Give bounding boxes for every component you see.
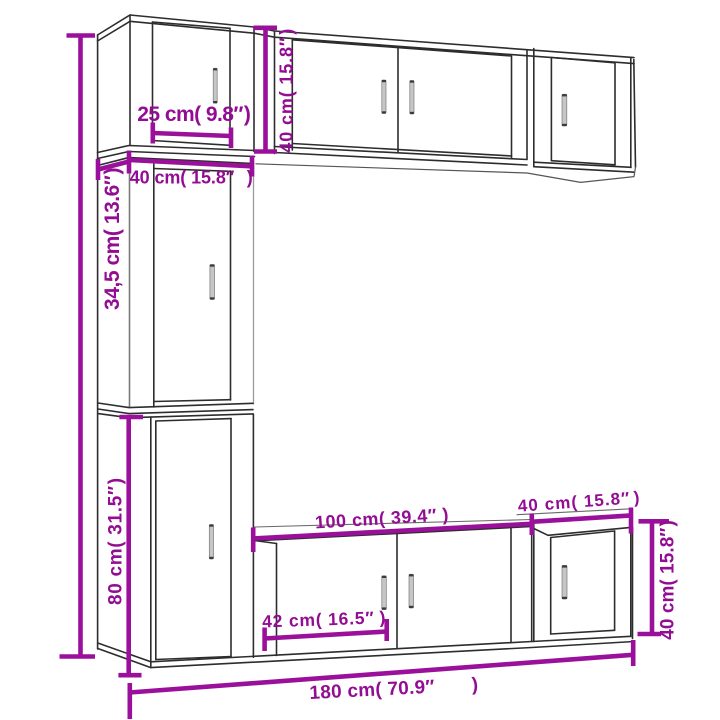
svg-text:80 cm( 31.5″): 80 cm( 31.5″) (105, 477, 126, 605)
svg-text:34,5 cm( 13.6″): 34,5 cm( 13.6″) (101, 168, 124, 310)
svg-text:25 cm( 9.8″): 25 cm( 9.8″) (137, 103, 250, 126)
svg-text:40 cm( 15.8″): 40 cm( 15.8″) (276, 28, 296, 153)
svg-text:40 cm( 15.8″): 40 cm( 15.8″) (658, 520, 679, 640)
